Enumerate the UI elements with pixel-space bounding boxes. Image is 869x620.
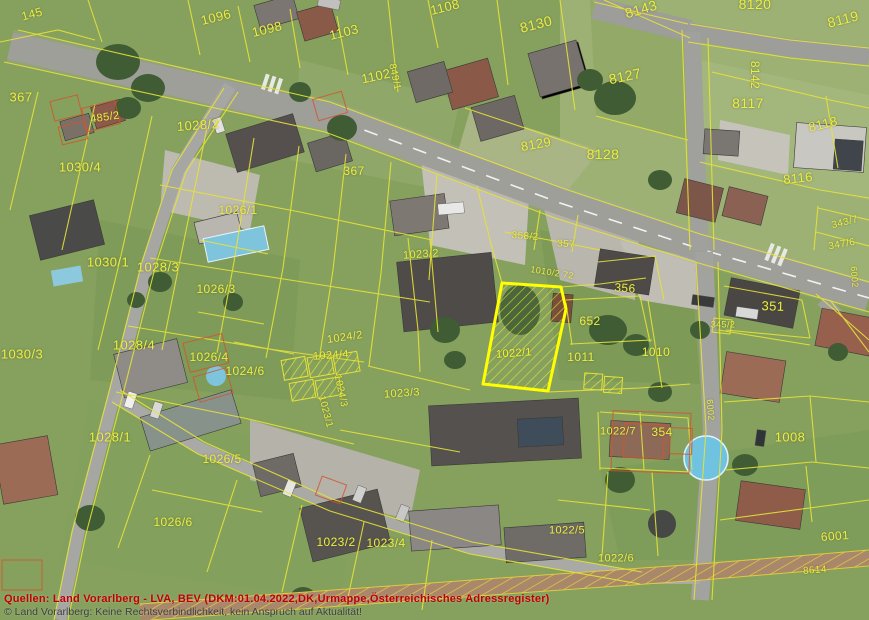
aerial-map[interactable]: [0, 0, 869, 620]
map-viewport[interactable]: 1451096109811031108813081438120811981428…: [0, 0, 869, 620]
